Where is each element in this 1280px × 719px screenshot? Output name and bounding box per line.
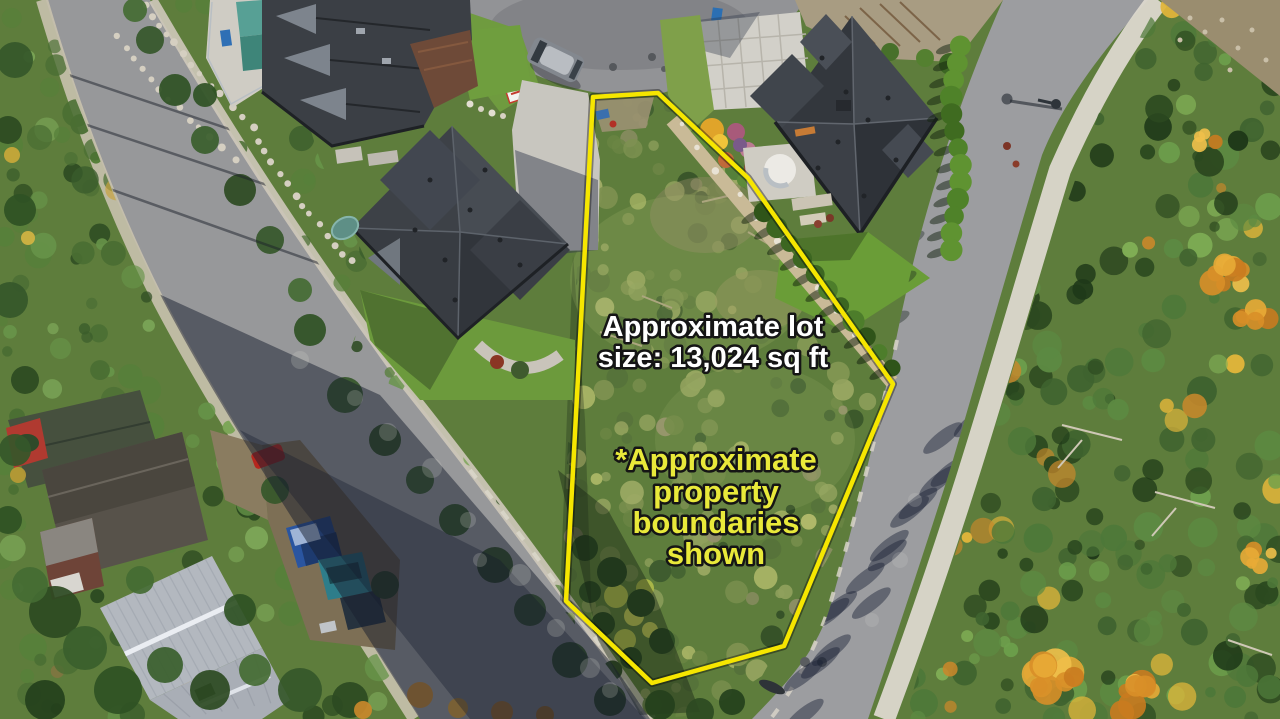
disclaimer-line-1: *Approximate <box>615 442 817 477</box>
disclaimer-line-4: shown <box>667 536 765 571</box>
hydrant <box>1003 142 1011 150</box>
aerial-photo: Approximate lot size: 13,024 sq ft *Appr… <box>0 0 1280 719</box>
lot-size-label-line-2: size: 13,024 sq ft <box>598 342 829 374</box>
lot-size-label-line-1: Approximate lot <box>603 311 824 343</box>
aerial-photo-stage: Approximate lot size: 13,024 sq ft *Appr… <box>0 0 1280 719</box>
disclaimer-line-3: boundaries <box>632 505 799 540</box>
swimming-pool <box>236 0 266 37</box>
disclaimer-line-2: property <box>653 474 780 509</box>
